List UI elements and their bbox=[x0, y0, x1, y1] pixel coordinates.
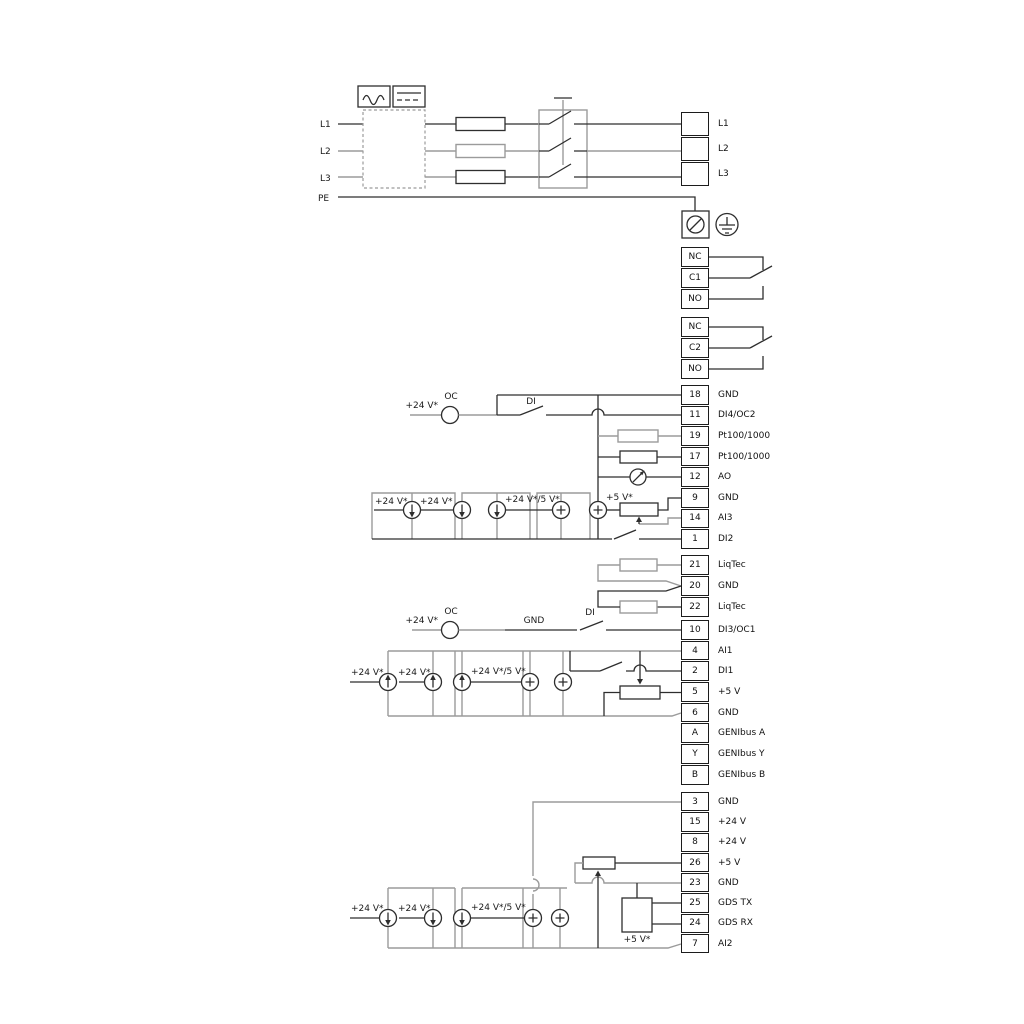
terminal-label: GND bbox=[718, 385, 739, 405]
wire bbox=[533, 802, 681, 910]
terminal-row: NC bbox=[681, 317, 718, 337]
current-source-plus bbox=[590, 502, 607, 519]
current-source-down bbox=[454, 910, 471, 927]
wire bbox=[620, 686, 660, 699]
supply-label: +5 V* bbox=[624, 935, 651, 945]
terminal-row: 25 GDS TX bbox=[681, 893, 753, 912]
terminal-label: GND bbox=[718, 873, 739, 892]
mains-left-label: L1 bbox=[320, 120, 331, 130]
earth-icon bbox=[716, 214, 738, 236]
terminal-row: 7 AI2 bbox=[681, 934, 753, 953]
analog-output-meter bbox=[630, 469, 646, 485]
terminal-label: DI1 bbox=[718, 661, 733, 681]
wire bbox=[388, 713, 681, 716]
liqtec-resistor bbox=[620, 559, 657, 571]
wire bbox=[546, 409, 681, 415]
terminal-row: C2 bbox=[681, 338, 718, 358]
terminal-cell: 11 bbox=[681, 406, 709, 426]
terminal-label: DI3/OC1 bbox=[718, 620, 755, 640]
terminal-strip-io3: 3 GND 15 +24 V 8 +24 V 26 +5 V 23 GND 25… bbox=[681, 792, 753, 953]
terminal-cell: 18 bbox=[681, 385, 709, 405]
di1-switch bbox=[570, 651, 681, 671]
current-source-down bbox=[425, 910, 442, 927]
gnd-label: GND bbox=[524, 616, 545, 626]
terminal-cell: 14 bbox=[681, 509, 709, 529]
terminal-label: +24 V bbox=[718, 833, 746, 852]
dc-symbol-box bbox=[393, 86, 425, 107]
terminal-row: 18 GND bbox=[681, 385, 770, 405]
supply-label: +24 V* bbox=[351, 668, 384, 678]
terminal-cell: Y bbox=[681, 744, 709, 764]
terminal-label: GENIbus A bbox=[718, 723, 765, 743]
terminal-cell: 24 bbox=[681, 914, 709, 933]
terminal-row: 5 +5 V bbox=[681, 682, 765, 702]
pe-terminal bbox=[682, 211, 709, 238]
current-source-plus bbox=[522, 674, 539, 691]
terminal-row: NO bbox=[681, 289, 718, 309]
io2-wiring: +24 V* OC GND DI +24 V* +24 V* +24 V*/5 … bbox=[350, 607, 681, 716]
terminal-row: C1 bbox=[681, 268, 718, 288]
terminal-label: AI3 bbox=[718, 509, 733, 529]
di2-switch bbox=[372, 530, 681, 539]
terminal-label: GENIbus B bbox=[718, 765, 765, 785]
terminal-strip-relay1: NC C1 NO bbox=[681, 247, 718, 309]
terminal-cell: C2 bbox=[681, 338, 709, 358]
terminal-label: L1 bbox=[718, 112, 729, 136]
terminal-row: L1 bbox=[681, 112, 729, 136]
wire bbox=[533, 879, 539, 891]
terminal-cell: 12 bbox=[681, 467, 709, 487]
current-source-plus bbox=[525, 910, 542, 927]
mains-input-section: L1 L2 L3 PE bbox=[318, 86, 738, 238]
terminal-label: GDS TX bbox=[718, 893, 752, 912]
terminal-label: L2 bbox=[718, 137, 729, 161]
terminal-cell: 21 bbox=[681, 555, 709, 575]
terminal-strip-io1: 18 GND 11 DI4/OC2 19 Pt100/1000 17 Pt100… bbox=[681, 385, 770, 549]
terminal-cell: 8 bbox=[681, 833, 709, 852]
terminal-label: GND bbox=[718, 792, 739, 811]
current-source-up bbox=[380, 674, 397, 691]
terminal-row: 1 DI2 bbox=[681, 529, 770, 549]
oc-label: OC bbox=[444, 607, 457, 617]
ac-symbol-box bbox=[358, 86, 390, 107]
terminal-row: NC bbox=[681, 247, 718, 267]
di4-switch bbox=[497, 406, 543, 415]
terminal-cell: NC bbox=[681, 317, 709, 337]
terminal-label: Pt100/1000 bbox=[718, 426, 770, 446]
terminal-cell: A bbox=[681, 723, 709, 743]
relay1-contact bbox=[709, 257, 772, 299]
wire bbox=[393, 86, 425, 107]
terminal-row: 9 GND bbox=[681, 488, 770, 508]
io3-wiring: +24 V* +24 V* +24 V*/5 V* +5 V* bbox=[350, 802, 681, 948]
fuse bbox=[456, 171, 505, 184]
terminal-cell: 4 bbox=[681, 641, 709, 661]
current-source-plus bbox=[555, 674, 572, 691]
terminal-row: NO bbox=[681, 359, 718, 379]
current-source-up bbox=[454, 674, 471, 691]
terminal-label: DI2 bbox=[718, 529, 733, 549]
current-source-plus bbox=[552, 910, 569, 927]
wiring-diagram-page: L1 L2 L3 PE bbox=[0, 0, 1024, 1024]
terminal-row: L2 bbox=[681, 137, 729, 161]
wire bbox=[636, 517, 642, 523]
terminal-row: Y GENIbus Y bbox=[681, 744, 765, 764]
mains-left-label: PE bbox=[318, 194, 329, 204]
terminal-row: 22 LiqTec bbox=[681, 597, 746, 617]
current-source-plus bbox=[553, 502, 570, 519]
terminal-cell: NO bbox=[681, 359, 709, 379]
diagram-canvas: L1 L2 L3 PE bbox=[0, 0, 1024, 1024]
terminal-row: 6 GND bbox=[681, 703, 765, 723]
terminal-cell: 7 bbox=[681, 934, 709, 953]
terminal-cell: 9 bbox=[681, 488, 709, 508]
wire bbox=[583, 857, 615, 869]
terminal-row: 19 Pt100/1000 bbox=[681, 426, 770, 446]
terminal-row: L3 bbox=[681, 162, 729, 186]
wire bbox=[652, 903, 681, 924]
terminal-row: 8 +24 V bbox=[681, 833, 753, 852]
fuse bbox=[456, 145, 505, 158]
wire bbox=[620, 503, 658, 516]
oc-terminal bbox=[442, 622, 459, 639]
terminal-row: 14 AI3 bbox=[681, 509, 770, 529]
terminal-cell: 6 bbox=[681, 703, 709, 723]
terminal-cell: NO bbox=[681, 289, 709, 309]
terminal-cell: 3 bbox=[681, 792, 709, 811]
terminal-cell: 25 bbox=[681, 893, 709, 912]
terminal-row: B GENIbus B bbox=[681, 765, 765, 785]
io1-wiring: +24 V* OC DI +24 V* +24 V* +2 bbox=[372, 392, 681, 539]
supply-label: +5 V* bbox=[606, 493, 633, 503]
terminal-label: +5 V bbox=[718, 853, 740, 872]
di-label: DI bbox=[526, 397, 536, 407]
supply-label: +24 V*/5 V* bbox=[505, 495, 560, 505]
di-label: DI bbox=[585, 608, 595, 618]
terminal-cell: 19 bbox=[681, 426, 709, 446]
supply-label: +24 V* bbox=[351, 904, 384, 914]
terminal-row: 17 Pt100/1000 bbox=[681, 447, 770, 467]
supply-label: +24 V* bbox=[375, 497, 408, 507]
terminal-label: LiqTec bbox=[718, 597, 746, 617]
terminal-label: GDS RX bbox=[718, 914, 753, 933]
terminal-cell: 2 bbox=[681, 661, 709, 681]
terminal-row: 15 +24 V bbox=[681, 812, 753, 831]
terminal-cell: 5 bbox=[681, 682, 709, 702]
terminal-cell bbox=[681, 137, 709, 161]
terminal-strip-relay2: NC C2 NO bbox=[681, 317, 718, 379]
terminal-label: GND bbox=[718, 576, 739, 596]
oc-terminal bbox=[442, 407, 459, 424]
liqtec-resistor bbox=[620, 601, 657, 613]
gds-sensor-box: +5 V* bbox=[622, 883, 681, 945]
wire bbox=[660, 692, 681, 693]
terminal-row: 20 GND bbox=[681, 576, 746, 596]
terminal-cell bbox=[681, 112, 709, 136]
mains-left-label: L2 bbox=[320, 147, 331, 157]
wire bbox=[338, 197, 695, 211]
terminal-label: GND bbox=[718, 703, 739, 723]
terminal-cell: B bbox=[681, 765, 709, 785]
terminal-label: L3 bbox=[718, 162, 729, 186]
wire bbox=[637, 679, 643, 685]
terminal-cell: 26 bbox=[681, 853, 709, 872]
terminal-cell: 17 bbox=[681, 447, 709, 467]
terminal-row: 12 AO bbox=[681, 467, 770, 487]
supply-label: +24 V*/5 V* bbox=[471, 903, 526, 913]
supply-label: +24 V* bbox=[420, 497, 453, 507]
filter-box bbox=[363, 110, 425, 188]
terminal-row: A GENIbus A bbox=[681, 723, 765, 743]
terminal-row: 23 GND bbox=[681, 873, 753, 892]
terminal-strip-io2: 10 DI3/OC1 4 AI1 2 DI1 5 +5 V 6 GND A GE… bbox=[681, 620, 765, 785]
terminal-strip-liqtec: 21 LiqTec 20 GND 22 LiqTec bbox=[681, 555, 746, 617]
terminal-cell: 20 bbox=[681, 576, 709, 596]
oc-label: OC bbox=[444, 392, 457, 402]
terminal-cell: 22 bbox=[681, 597, 709, 617]
terminal-strip-mains: L1 L2 L3 bbox=[681, 112, 729, 186]
terminal-label: +24 V bbox=[718, 812, 746, 831]
terminal-label: +5 V bbox=[718, 682, 740, 702]
liqtec-wiring bbox=[598, 559, 681, 613]
setpoint-potentiometer bbox=[604, 651, 681, 716]
supply-label: +24 V*/5 V* bbox=[471, 667, 526, 677]
terminal-row: 2 DI1 bbox=[681, 661, 765, 681]
terminal-row: 3 GND bbox=[681, 792, 753, 811]
current-source-up bbox=[425, 674, 442, 691]
current-source-down bbox=[489, 502, 506, 519]
terminal-cell: C1 bbox=[681, 268, 709, 288]
terminal-label: AI2 bbox=[718, 934, 733, 953]
terminal-cell: 1 bbox=[681, 529, 709, 549]
terminal-cell bbox=[681, 162, 709, 186]
terminal-cell: 15 bbox=[681, 812, 709, 831]
terminal-row: 10 DI3/OC1 bbox=[681, 620, 765, 640]
terminal-label: AO bbox=[718, 467, 731, 487]
terminal-label: LiqTec bbox=[718, 555, 746, 575]
terminal-cell: 23 bbox=[681, 873, 709, 892]
wire bbox=[433, 651, 563, 716]
terminal-label: GENIbus Y bbox=[718, 744, 765, 764]
terminal-row: 4 AI1 bbox=[681, 641, 765, 661]
terminal-row: 24 GDS RX bbox=[681, 914, 753, 933]
terminal-label: GND bbox=[718, 488, 739, 508]
wire bbox=[604, 693, 620, 717]
mains-left-label: L3 bbox=[320, 174, 331, 184]
current-source-down bbox=[454, 502, 471, 519]
terminal-label: Pt100/1000 bbox=[718, 447, 770, 467]
terminal-cell: NC bbox=[681, 247, 709, 267]
wire bbox=[622, 898, 652, 932]
terminal-cell: 10 bbox=[681, 620, 709, 640]
relay2-contact bbox=[709, 327, 772, 369]
pt100-resistor bbox=[618, 430, 658, 442]
terminal-label: AI1 bbox=[718, 641, 733, 661]
fuse bbox=[456, 118, 505, 131]
current-source-down bbox=[380, 910, 397, 927]
supply-label: +24 V* bbox=[405, 401, 438, 411]
terminal-row: 21 LiqTec bbox=[681, 555, 746, 575]
current-source-down bbox=[404, 502, 421, 519]
supply-label: +24 V* bbox=[405, 616, 438, 626]
wire bbox=[595, 871, 601, 877]
terminal-row: 26 +5 V bbox=[681, 853, 753, 872]
pt100-resistor bbox=[620, 451, 657, 463]
terminal-row: 11 DI4/OC2 bbox=[681, 406, 770, 426]
terminal-label: DI4/OC2 bbox=[718, 406, 755, 426]
disconnect-switch bbox=[539, 98, 587, 188]
wire bbox=[639, 518, 681, 524]
wire bbox=[658, 498, 681, 510]
